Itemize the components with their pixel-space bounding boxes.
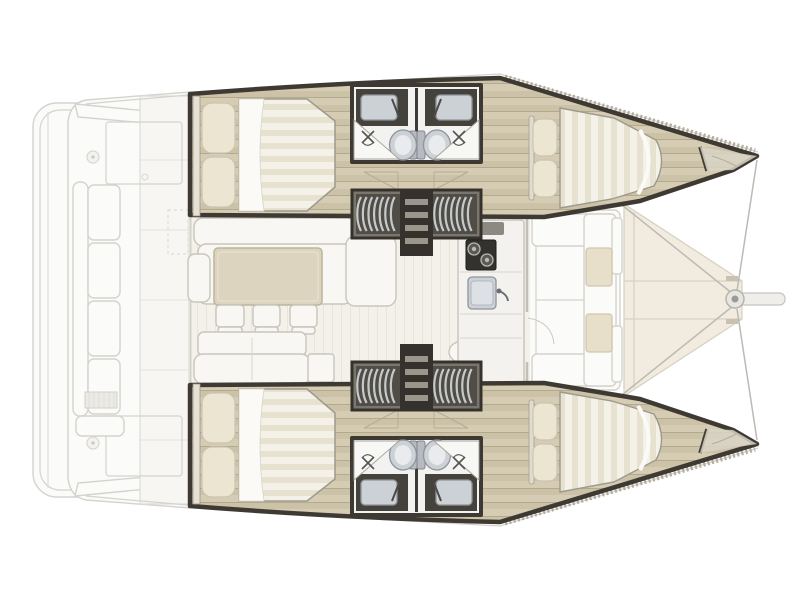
fore-cockpit-cushion — [586, 314, 612, 352]
bathroom-sink — [436, 95, 472, 120]
pillow — [533, 160, 557, 197]
dining-table — [214, 248, 322, 305]
aft-bench — [73, 182, 124, 436]
fore-cockpit — [528, 210, 622, 390]
pillow — [202, 157, 235, 207]
bathroom-sink — [361, 95, 397, 120]
catamaran-floorplan — [0, 0, 800, 600]
sofa-end-seat — [188, 254, 210, 302]
stove — [466, 240, 496, 270]
aft-sofa — [194, 332, 310, 384]
aft-exterior — [33, 92, 190, 508]
foredeck — [624, 204, 742, 396]
pillow — [202, 103, 235, 153]
side-table — [308, 354, 334, 382]
fore-cockpit-cushion — [586, 248, 612, 286]
pillow — [533, 119, 557, 156]
stools — [216, 305, 317, 334]
bathroom-block — [352, 85, 481, 162]
